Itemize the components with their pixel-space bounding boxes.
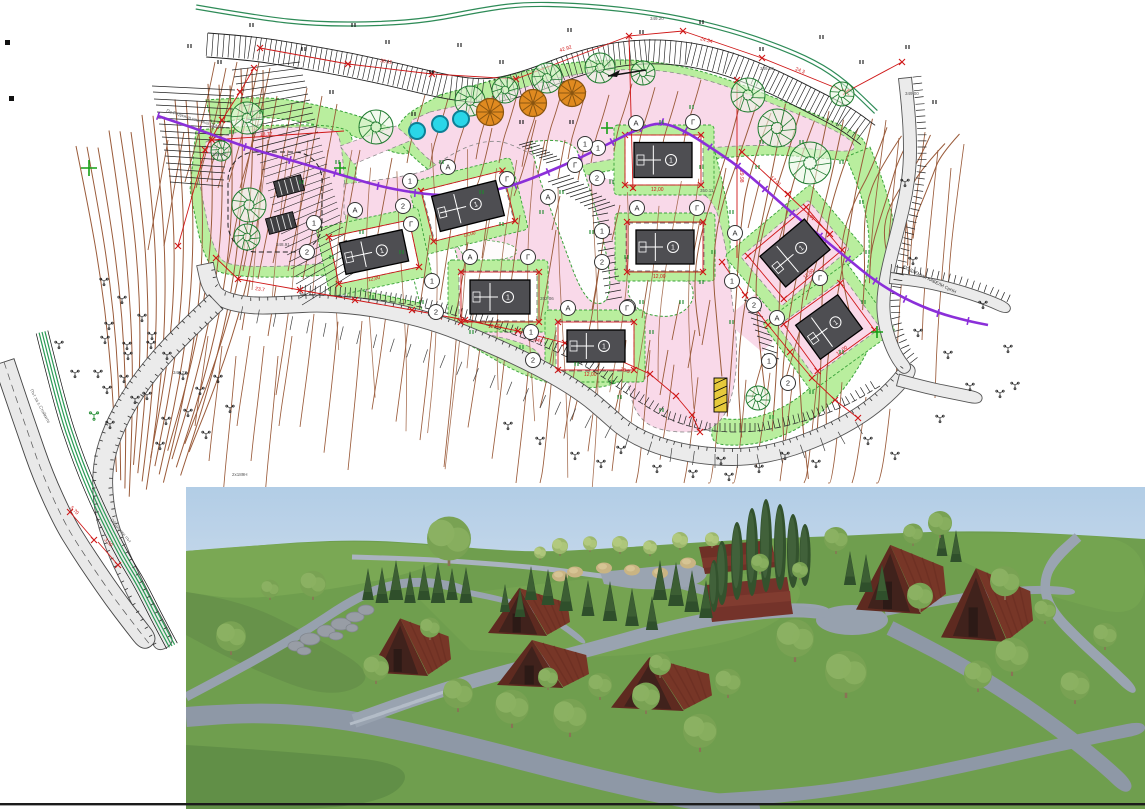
- svg-text:А: А: [732, 229, 737, 238]
- svg-text:349.87: 349.87: [212, 152, 226, 157]
- svg-text:А: А: [634, 204, 639, 213]
- svg-text:Г: Г: [573, 161, 577, 170]
- svg-text:12,00: 12,00: [488, 324, 501, 330]
- svg-text:1: 1: [671, 245, 675, 252]
- svg-text:350.11: 350.11: [700, 188, 714, 193]
- svg-text:2: 2: [434, 308, 438, 317]
- svg-text:1: 1: [767, 357, 771, 366]
- svg-text:Г: Г: [505, 175, 509, 184]
- svg-text:А: А: [633, 119, 638, 128]
- svg-text:А: А: [467, 253, 472, 262]
- svg-text:2: 2: [401, 202, 405, 211]
- svg-text:349.00: 349.00: [905, 91, 919, 96]
- svg-text:18.77: 18.77: [260, 131, 273, 138]
- svg-text:Г: Г: [818, 274, 822, 283]
- svg-text:349.20: 349.20: [760, 66, 774, 71]
- svg-text:1: 1: [506, 295, 510, 302]
- svg-text:12,00: 12,00: [653, 274, 666, 280]
- svg-text:1: 1: [602, 344, 606, 351]
- svg-text:1: 1: [430, 277, 434, 286]
- svg-text:2: 2: [600, 258, 604, 267]
- svg-text:1: 1: [669, 158, 673, 165]
- svg-text:1: 1: [583, 140, 587, 149]
- svg-text:1: 1: [529, 328, 533, 337]
- svg-text:А: А: [445, 163, 450, 172]
- svg-text:12,00: 12,00: [651, 187, 664, 193]
- svg-text:352.06: 352.06: [540, 296, 554, 301]
- svg-text:1: 1: [730, 277, 734, 286]
- svg-text:2: 2: [531, 356, 535, 365]
- svg-text:Г: Г: [625, 304, 629, 313]
- svg-text:2: 2: [595, 174, 599, 183]
- svg-text:1: 1: [408, 177, 412, 186]
- svg-text:1: 1: [600, 227, 604, 236]
- svg-text:Г: Г: [695, 204, 699, 213]
- svg-text:А: А: [545, 193, 550, 202]
- svg-text:А: А: [565, 304, 570, 313]
- svg-text:348.91: 348.91: [276, 242, 290, 247]
- svg-text:349.20: 349.20: [650, 16, 664, 21]
- svg-text:А: А: [352, 206, 357, 215]
- svg-text:12,00: 12,00: [584, 372, 597, 378]
- svg-text:Г: Г: [409, 220, 413, 229]
- svg-text:349.27: 349.27: [173, 370, 187, 375]
- svg-text:1: 1: [312, 219, 316, 228]
- svg-text:Г: Г: [691, 118, 695, 127]
- svg-text:2: 2: [305, 248, 309, 257]
- svg-text:1: 1: [596, 144, 600, 153]
- svg-text:А: А: [774, 314, 779, 323]
- svg-text:2: 2: [786, 379, 790, 388]
- svg-text:Г: Г: [526, 253, 530, 262]
- svg-text:2: 2: [752, 301, 756, 310]
- svg-text:2x189H: 2x189H: [232, 472, 248, 477]
